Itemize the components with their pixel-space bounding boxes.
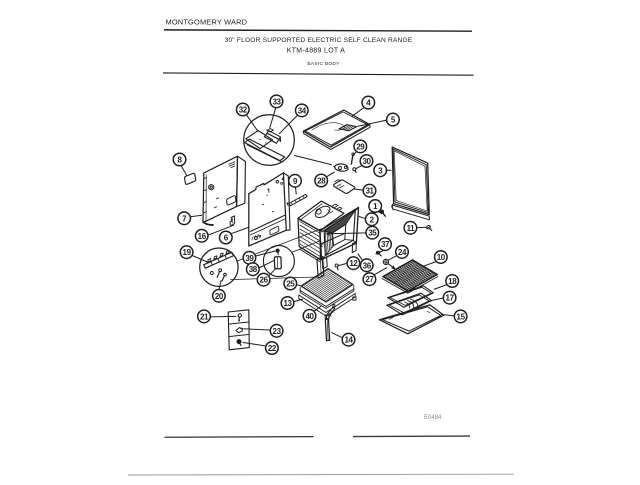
svg-text:39: 39	[245, 254, 254, 263]
svg-text:16: 16	[198, 232, 207, 241]
svg-text:22: 22	[268, 344, 277, 353]
svg-text:38: 38	[249, 265, 258, 274]
svg-text:KTM-4889 LOT A: KTM-4889 LOT A	[287, 48, 345, 55]
svg-text:E0484: E0484	[424, 415, 442, 421]
svg-text:24: 24	[398, 248, 407, 257]
svg-text:31: 31	[365, 187, 374, 196]
svg-text:25: 25	[286, 280, 295, 289]
svg-text:28: 28	[317, 177, 326, 186]
svg-text:26: 26	[260, 276, 269, 285]
svg-text:34: 34	[298, 106, 307, 115]
svg-text:30" FLOOR SUPPORTED ELECTRIC S: 30" FLOOR SUPPORTED ELECTRIC SELF CLEAN …	[225, 37, 413, 44]
svg-text:BASIC BODY: BASIC BODY	[307, 61, 340, 67]
svg-text:36: 36	[363, 261, 372, 270]
svg-text:10: 10	[437, 253, 446, 262]
svg-text:19: 19	[183, 248, 192, 257]
svg-text:12: 12	[349, 259, 358, 268]
svg-text:37: 37	[381, 240, 390, 249]
svg-text:11: 11	[407, 224, 416, 233]
svg-text:29: 29	[356, 142, 365, 151]
svg-text:27: 27	[365, 275, 374, 284]
svg-text:17: 17	[446, 294, 455, 303]
svg-text:MONTGOMERY WARD: MONTGOMERY WARD	[166, 17, 248, 26]
svg-text:13: 13	[283, 299, 292, 308]
svg-text:40: 40	[305, 312, 314, 321]
svg-text:15: 15	[457, 312, 466, 321]
svg-text:21: 21	[200, 312, 209, 321]
svg-text:20: 20	[215, 292, 224, 301]
svg-text:35: 35	[368, 229, 377, 238]
svg-text:23: 23	[273, 327, 282, 336]
svg-text:14: 14	[344, 336, 353, 345]
svg-text:30: 30	[362, 157, 371, 166]
svg-text:18: 18	[448, 277, 457, 286]
svg-text:32: 32	[239, 106, 248, 115]
svg-text:33: 33	[272, 97, 281, 106]
